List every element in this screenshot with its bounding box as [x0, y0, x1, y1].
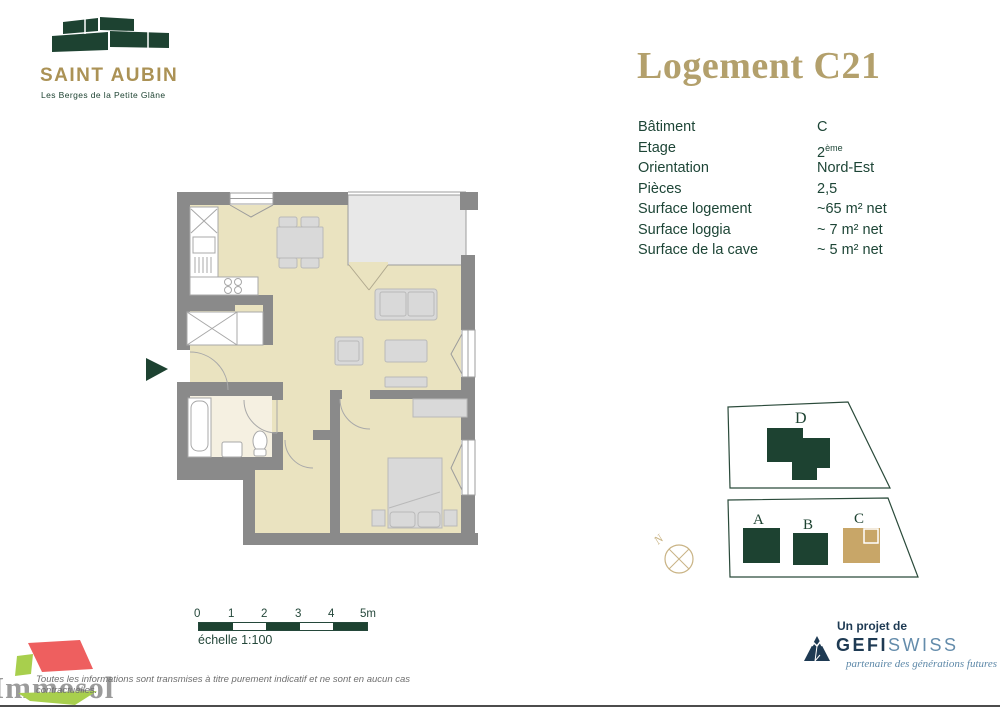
- building-d-label: D: [795, 410, 807, 427]
- building-c-label: C: [854, 511, 864, 527]
- building-d: [767, 428, 830, 480]
- detail-row: Pièces 2,5: [638, 179, 938, 200]
- detail-label: Surface logement: [638, 201, 752, 217]
- detail-row: Etage 2ème: [638, 138, 938, 159]
- scale-tick: 0: [194, 608, 200, 620]
- detail-row: Surface loggia ~ 7 m² net: [638, 220, 938, 241]
- immosol-logo: Immosol: [0, 636, 125, 707]
- unit-details-table: Bâtiment C Etage 2ème Orientation Nord-E…: [638, 117, 938, 261]
- site-plan: D A B C N: [640, 395, 930, 585]
- detail-label: Orientation: [638, 160, 709, 176]
- detail-label: Pièces: [638, 181, 682, 197]
- disclaimer-text: Toutes les informations sont transmises …: [36, 674, 466, 696]
- gefiswiss-logo: Un projet de GEFISWISS partenaire des gé…: [790, 619, 1000, 670]
- compass-north-label: N: [650, 531, 667, 548]
- page-title: Logement C21: [637, 44, 880, 88]
- detail-label: Surface de la cave: [638, 242, 758, 258]
- detail-value: ~ 7 m² net: [817, 220, 883, 241]
- detail-row: Orientation Nord-Est: [638, 158, 938, 179]
- detail-value: C: [817, 117, 827, 138]
- detail-value: ~65 m² net: [817, 199, 887, 220]
- scale-tick: 2: [261, 608, 267, 620]
- gefiswiss-prefix: Un projet de: [837, 619, 1000, 633]
- building-b: [793, 533, 828, 565]
- logo-title: SAINT AUBIN: [40, 65, 220, 87]
- floor-plan: [140, 178, 494, 553]
- detail-value: 2,5: [817, 179, 837, 200]
- mountain-icon: [802, 633, 832, 663]
- building-a: [743, 528, 780, 563]
- compass-icon: N: [650, 531, 693, 573]
- scale-tick: 5m: [360, 608, 376, 620]
- detail-value: Nord-Est: [817, 158, 874, 179]
- scale-tick: 3: [295, 608, 301, 620]
- detail-label: Surface loggia: [638, 222, 731, 238]
- detail-label: Bâtiment: [638, 119, 695, 135]
- detail-row: Surface logement ~65 m² net: [638, 199, 938, 220]
- scale-caption: échelle 1:100: [198, 633, 272, 647]
- saint-aubin-logo: SAINT AUBIN Les Berges de la Petite Glân…: [30, 12, 220, 100]
- scale-bar-segments: [198, 622, 368, 631]
- brochure-page: SAINT AUBIN Les Berges de la Petite Glân…: [0, 0, 1000, 707]
- scale-tick: 1: [228, 608, 234, 620]
- saint-aubin-buildings-icon: [30, 12, 190, 58]
- detail-label: Etage: [638, 140, 676, 156]
- unit-location-marker: [864, 529, 878, 543]
- building-a-label: A: [753, 512, 764, 528]
- detail-row: Bâtiment C: [638, 117, 938, 138]
- logo-subtitle: Les Berges de la Petite Glâne: [41, 90, 220, 100]
- building-b-label: B: [803, 517, 813, 533]
- gefiswiss-wordmark: GEFISWISS: [836, 635, 1000, 656]
- entrance-arrow-icon: [146, 358, 168, 381]
- gefiswiss-tagline: partenaire des générations futures: [846, 658, 1000, 670]
- detail-row: Surface de la cave ~ 5 m² net: [638, 240, 938, 261]
- scale-tick: 4: [328, 608, 334, 620]
- loggia-floor: [348, 195, 466, 265]
- detail-value: ~ 5 m² net: [817, 240, 883, 261]
